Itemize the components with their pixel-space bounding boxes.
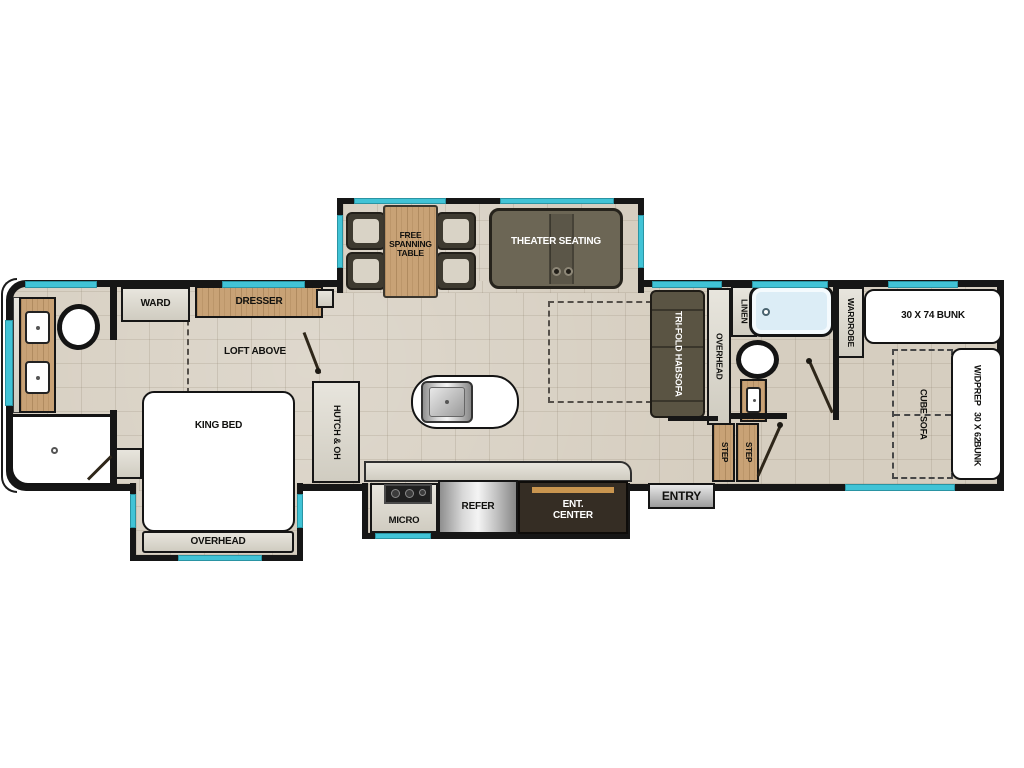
theater-seating: THEATER SEATING bbox=[489, 208, 623, 289]
hutch-label: HUTCH & OH bbox=[314, 383, 358, 481]
dinette-chair-4 bbox=[436, 252, 476, 290]
king-bed-label: KING BED bbox=[144, 421, 293, 432]
refrigerator: REFER bbox=[438, 480, 518, 534]
cube-sofa: CUBE SOFA bbox=[892, 349, 953, 479]
bunk-30x74: 30 X 74 BUNK bbox=[864, 289, 1002, 344]
step-2-label: STEP bbox=[738, 425, 757, 480]
window-bunk-top bbox=[888, 281, 958, 288]
loft-above-label: LOFT ABOVE bbox=[203, 347, 307, 358]
theater-label: THEATER SEATING bbox=[492, 237, 620, 248]
window-dinette-top-left bbox=[354, 198, 446, 204]
window-front-bath-top bbox=[25, 281, 97, 288]
window-kingslide-right bbox=[297, 494, 303, 528]
island-sink bbox=[421, 381, 473, 423]
sofa-overhead-label: OVERHEAD bbox=[709, 290, 729, 423]
window-kingslide-bottom bbox=[178, 555, 262, 561]
dinette-chair-1 bbox=[346, 212, 386, 250]
ward-label: WARD bbox=[141, 299, 171, 310]
window-bedroom-top bbox=[222, 281, 305, 288]
wd-prep-label-2: PREP bbox=[972, 382, 982, 406]
shower-drain bbox=[51, 447, 58, 454]
cooktop bbox=[384, 484, 432, 504]
loft-outline-dash bbox=[548, 301, 652, 403]
steps-door-hinge bbox=[777, 422, 783, 428]
bed-overhead-label: OVERHEAD bbox=[190, 537, 245, 548]
dinette-chair-2 bbox=[346, 252, 386, 290]
bunk62-label-1: 30 X 62 bbox=[972, 412, 982, 442]
nightstand bbox=[114, 448, 142, 479]
window-sofa-top bbox=[652, 281, 722, 288]
sofa-overhead-cabinet: OVERHEAD bbox=[707, 288, 731, 425]
bath-right-wall bbox=[833, 287, 839, 420]
step-2: STEP bbox=[736, 423, 759, 482]
entry-door-marker: ENTRY bbox=[648, 483, 715, 509]
window-bunk-bottom bbox=[845, 484, 955, 491]
free-spanning-table: FREE SPANNING TABLE bbox=[383, 205, 438, 298]
step-1-label: STEP bbox=[714, 425, 733, 480]
window-kingslide-left bbox=[130, 494, 136, 528]
ent-label-2: CENTER bbox=[553, 510, 593, 521]
corner-cabinet bbox=[316, 289, 334, 308]
bunk62-label-2: BUNK bbox=[972, 441, 982, 466]
dresser-label: DRESSER bbox=[236, 297, 283, 308]
trifold-sofa: TRI-FOLD HAB SOFA bbox=[650, 290, 705, 418]
kitchen-counter bbox=[364, 461, 632, 482]
dresser: DRESSER bbox=[195, 286, 323, 318]
sofa-label-2: SOFA bbox=[673, 373, 683, 397]
ent-label-1: ENT. bbox=[563, 499, 584, 510]
cube-sofa-label: CUBE SOFA bbox=[894, 351, 951, 477]
sofa-platform-edge bbox=[668, 416, 718, 421]
rear-toilet bbox=[736, 340, 779, 379]
window-dinette-top-right bbox=[500, 198, 614, 204]
cupholder-2 bbox=[564, 267, 573, 276]
micro-label: MICRO bbox=[372, 516, 436, 526]
window-front-left bbox=[5, 320, 13, 406]
wd-prep-label-1: W/D bbox=[972, 365, 982, 382]
window-dinette-right bbox=[638, 215, 644, 268]
rear-wardrobe: WARDROBE bbox=[837, 287, 864, 358]
shower bbox=[10, 414, 117, 486]
bunk74-label: 30 X 74 BUNK bbox=[901, 311, 965, 322]
entry-label: ENTRY bbox=[662, 490, 701, 503]
bedroom-door-hinge bbox=[315, 368, 321, 374]
cupholder-1 bbox=[552, 267, 561, 276]
bed-overhead-cabinet: OVERHEAD bbox=[142, 531, 294, 553]
bathtub bbox=[749, 285, 834, 337]
step-1: STEP bbox=[712, 423, 735, 482]
dinette-chair-3 bbox=[436, 212, 476, 250]
front-sink-2 bbox=[25, 361, 50, 394]
window-kitchenslide-bottom bbox=[375, 533, 431, 539]
floorplan-canvas: WARD DRESSER LOFT ABOVE KING BED OVERHEA… bbox=[0, 0, 1024, 768]
front-sink-1 bbox=[25, 311, 50, 344]
wardrobe-front: WARD bbox=[121, 287, 190, 322]
sofa-label-1: TRI-FOLD HAB bbox=[673, 311, 683, 373]
bath-wall-upper bbox=[110, 287, 117, 340]
refer-label: REFER bbox=[462, 502, 495, 513]
bath-door-hinge bbox=[806, 358, 812, 364]
table-label-3: TABLE bbox=[397, 248, 424, 258]
bunk-30x62-wd-prep: W/D PREP 30 X 62 BUNK bbox=[951, 348, 1002, 480]
king-bed: KING BED bbox=[142, 391, 295, 532]
bath-bottom-wall bbox=[729, 413, 787, 419]
bath-wall-lower bbox=[110, 410, 117, 487]
hutch-cabinet: HUTCH & OH bbox=[312, 381, 360, 483]
wardrobe-label: WARDROBE bbox=[839, 289, 862, 356]
window-dinette-left bbox=[337, 215, 343, 268]
window-tub-top bbox=[752, 281, 828, 288]
ent-shelf bbox=[532, 487, 614, 493]
tub-drain bbox=[762, 308, 770, 316]
entertainment-center: ENT. CENTER bbox=[518, 481, 628, 534]
